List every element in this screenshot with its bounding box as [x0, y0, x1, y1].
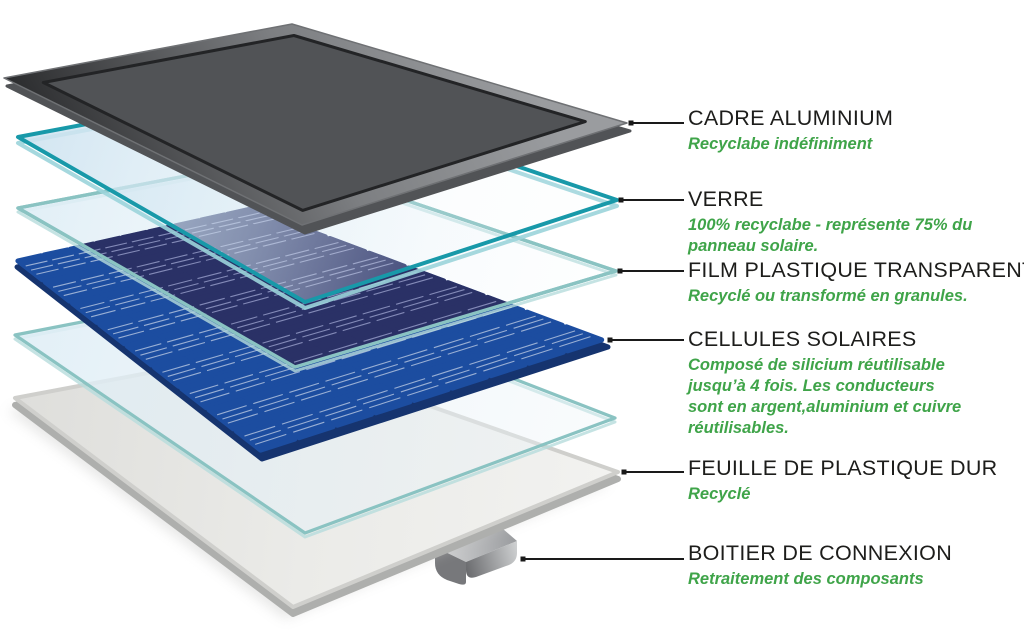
layer-heading-cadre-aluminium: CADRE ALUMINIUM	[688, 106, 1020, 130]
layer-heading-feuille-plastique: FEUILLE DE PLASTIQUE DUR	[688, 456, 1020, 480]
label-boitier-de-connexion: BOITIER DE CONNEXION Retraitement des co…	[688, 541, 1020, 590]
layer-subtitle-cellules-solaires: Composé de silicium réutilisable jusqu’à…	[688, 355, 1020, 439]
layer-heading-boitier-connexion: BOITIER DE CONNEXION	[688, 541, 1020, 565]
layer-subtitle-verre: 100% recyclabe - représente 75% du panne…	[688, 215, 1020, 257]
label-verre: VERRE 100% recyclabe - représente 75% du…	[688, 187, 1020, 257]
layer-subtitle-boitier-connexion: Retraitement des composants	[688, 569, 1020, 590]
label-cadre-aluminium: CADRE ALUMINIUM Recyclabe indéfiniment	[688, 106, 1020, 155]
layer-subtitle-feuille-plastique: Recyclé	[688, 484, 1020, 505]
layer-heading-cellules-solaires: CELLULES SOLAIRES	[688, 327, 1020, 351]
solar-panel-infographic: CADRE ALUMINIUM Recyclabe indéfiniment V…	[0, 0, 1024, 635]
layer-subtitle-film-plastique: Recyclé ou transformé en granules.	[688, 286, 1020, 307]
layer-heading-verre: VERRE	[688, 187, 1020, 211]
label-cellules-solaires: CELLULES SOLAIRES Composé de silicium ré…	[688, 327, 1020, 439]
label-feuille-de-plastique-dur: FEUILLE DE PLASTIQUE DUR Recyclé	[688, 456, 1020, 505]
solar-panel-exploded-diagram	[0, 0, 1024, 635]
label-film-plastique-transparent: FILM PLASTIQUE TRANSPARENT Recyclé ou tr…	[688, 258, 1020, 307]
layer-subtitle-cadre-aluminium: Recyclabe indéfiniment	[688, 134, 1020, 155]
layer-heading-film-plastique: FILM PLASTIQUE TRANSPARENT	[688, 258, 1020, 282]
